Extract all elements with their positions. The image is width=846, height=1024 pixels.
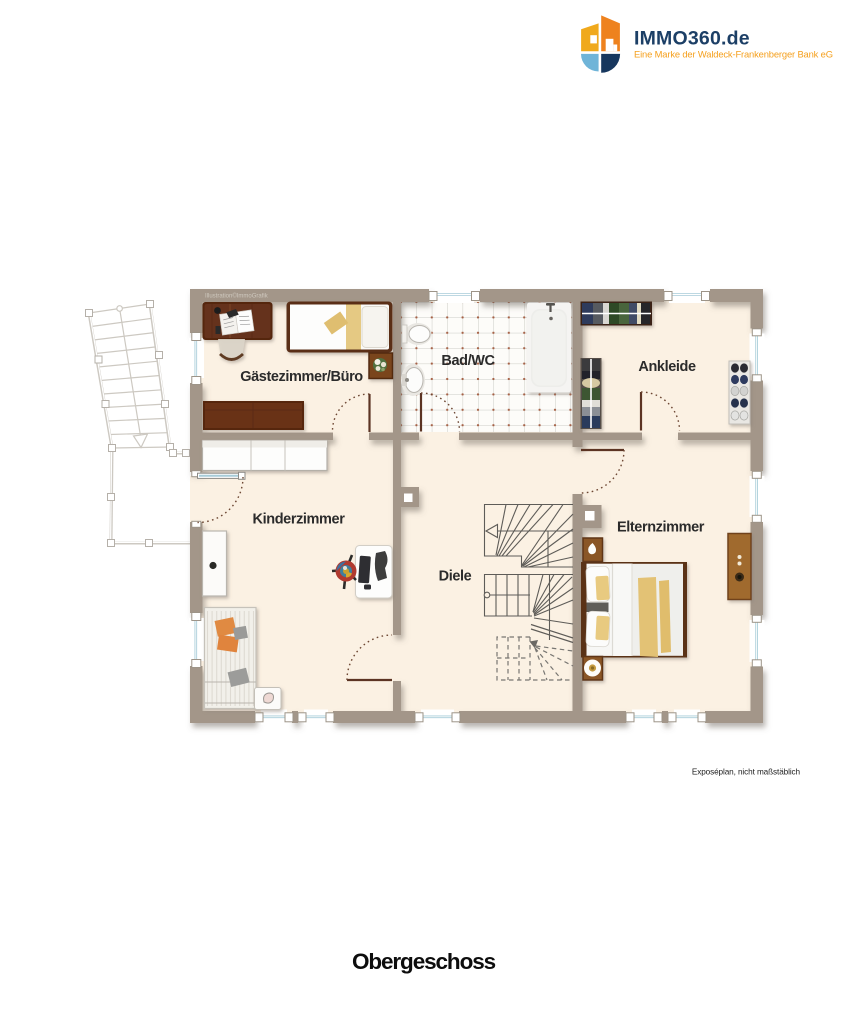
svg-text:IMMO360.de: IMMO360.de (634, 28, 750, 50)
svg-text:Obergeschoss: Obergeschoss (352, 949, 496, 974)
svg-text:Exposéplan, nicht maßstäblich: Exposéplan, nicht maßstäblich (692, 768, 801, 777)
svg-text:Kinderzimmer: Kinderzimmer (253, 512, 346, 528)
svg-text:Ankleide: Ankleide (638, 359, 696, 375)
svg-text:Diele: Diele (439, 569, 472, 585)
svg-text:Bad/WC: Bad/WC (441, 353, 495, 369)
svg-text:Eine Marke der Waldeck-Franken: Eine Marke der Waldeck-Frankenberger Ban… (634, 49, 833, 60)
svg-text:Illustration©ImmoGrafik: Illustration©ImmoGrafik (205, 293, 269, 300)
svg-text:Elternzimmer: Elternzimmer (617, 520, 705, 536)
svg-text:Gästezimmer/Büro: Gästezimmer/Büro (240, 369, 363, 385)
